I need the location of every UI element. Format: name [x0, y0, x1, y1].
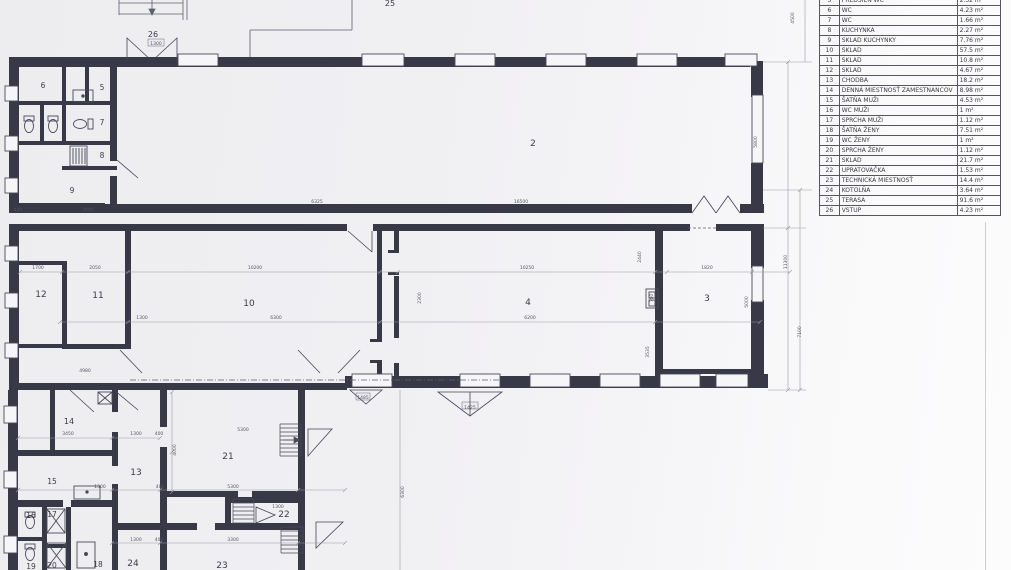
legend-cell-area: 1.12 m² [957, 146, 1000, 156]
room-label-17: 17 [47, 510, 57, 519]
legend-cell-area: 91.6 m² [957, 196, 1000, 206]
legend-row: 14DENNÁ MIESTNOSŤ ZAMESTNANCOV8.98 m² [820, 86, 1001, 96]
dimension-label: 5300 [237, 427, 249, 433]
room-label-15: 15 [47, 477, 57, 486]
room-label-14: 14 [64, 417, 74, 426]
room-label-23: 23 [216, 561, 227, 570]
dimension-label: 1300 [272, 504, 284, 510]
room-label-26: 26 [148, 30, 158, 39]
legend-cell-name: SKLAD [839, 66, 957, 76]
legend-cell-num: 12 [820, 66, 840, 76]
room-label-25: 25 [385, 0, 395, 8]
legend-row: 23TECHNICKÁ MIESTNOSŤ14.4 m² [820, 176, 1001, 186]
legend-row: 6WC4.23 m² [820, 6, 1001, 16]
legend-cell-name: WC [839, 16, 957, 26]
legend-cell-num: 22 [820, 166, 840, 176]
doors-group [70, 38, 740, 548]
legend-cell-name: CHODBA [839, 76, 957, 86]
dimension-label: 5300 [227, 484, 239, 490]
stairs-group [233, 424, 303, 553]
legend-cell-name: SKLAD [839, 46, 957, 56]
legend-row: 15ŠATŇA MUŽI4.53 m² [820, 96, 1001, 106]
legend-row: 9SKLAD KUCHYNKY7.76 m² [820, 36, 1001, 46]
dimension-label: 6300 [400, 486, 406, 498]
legend-cell-num: 20 [820, 146, 840, 156]
legend-row: 26VSTUP4.23 m² [820, 206, 1001, 216]
room-label-4: 4 [525, 298, 531, 308]
room-label-21: 21 [222, 452, 233, 462]
legend-row: 13CHODBA18.2 m² [820, 76, 1001, 86]
dimension-label: 16500 [514, 199, 528, 205]
dimension-label: 1425 [464, 405, 476, 411]
legend-row: 21SKLAD21.7 m² [820, 156, 1001, 166]
legend-cell-name: TERASA [839, 196, 957, 206]
legend-cell-num: 6 [820, 6, 840, 16]
legend-row: 11SKLAD10.8 m² [820, 56, 1001, 66]
legend-cell-area: 4.53 m² [957, 96, 1000, 106]
room-label-20: 20 [47, 561, 57, 570]
legend-cell-name: SPRCHA ŽENY [839, 146, 957, 156]
dimension-label: 1300 [130, 431, 142, 437]
scanned-floor-plan-page: 2345678910111213141516171819202122232425… [0, 0, 1011, 570]
dimension-label: 400 [156, 484, 165, 490]
legend-cell-area: 1 m² [957, 136, 1000, 146]
legend-cell-name: KUCHYNKA [839, 26, 957, 36]
legend-row: 24KOTOLŇA3.64 m² [820, 186, 1001, 196]
dimension-label: 750 [649, 294, 655, 303]
legend-cell-num: 16 [820, 106, 840, 116]
legend-cell-num: 21 [820, 156, 840, 166]
legend-cell-area: 4.23 m² [957, 6, 1000, 16]
legend-cell-area: 3.64 m² [957, 186, 1000, 196]
legend-cell-num: 23 [820, 176, 840, 186]
dimension-label: 1485 [357, 395, 369, 401]
legend-cell-num: 10 [820, 46, 840, 56]
room-label-6: 6 [41, 81, 46, 90]
legend-row: 20SPRCHA ŽENY1.12 m² [820, 146, 1001, 156]
legend-cell-area: 14.4 m² [957, 176, 1000, 186]
legend-cell-name: TECHNICKÁ MIESTNOSŤ [839, 176, 957, 186]
legend-row: 16WC MUŽI1 m² [820, 106, 1001, 116]
legend-cell-num: 15 [820, 96, 840, 106]
legend-cell-area: 7.76 m² [957, 36, 1000, 46]
legend-row: 8KUCHYNKA2.27 m² [820, 26, 1001, 36]
legend-cell-area: 10.8 m² [957, 56, 1000, 66]
walls-group [8, 57, 768, 570]
room-label-11: 11 [92, 291, 103, 301]
dimension-label: 2050 [89, 265, 101, 271]
dimension-label: 3535 [645, 346, 651, 358]
dimension-label: 3600 [82, 207, 94, 213]
dim-labels-group: 6325165001700205010200102501820130063006… [14, 12, 803, 543]
legend-cell-name: SKLAD [839, 56, 957, 66]
legend-cell-area: 8.98 m² [957, 86, 1000, 96]
dimension-label: 1300 [130, 537, 142, 543]
dimension-label: 6325 [311, 199, 323, 205]
dimension-label: 6200 [524, 315, 536, 321]
dimension-label: 3300 [227, 537, 239, 543]
legend-cell-area: 1 m² [957, 106, 1000, 116]
legend-cell-name: SKLAD KUCHYNKY [839, 36, 957, 46]
dimension-label: 1300 [94, 484, 106, 490]
legend-cell-area: 1.12 m² [957, 116, 1000, 126]
dimension-label: 1820 [701, 265, 713, 271]
legend-cell-name: ŠATŇA ŽENY [839, 126, 957, 136]
dimension-label: 10200 [248, 265, 262, 271]
legend-row: 7WC1.66 m² [820, 16, 1001, 26]
legend-cell-name: WC [839, 6, 957, 16]
legend-cell-num: 9 [820, 36, 840, 46]
dimension-label: 1700 [32, 265, 44, 271]
legend-row: 19WC ŽENY1 m² [820, 136, 1001, 146]
dimension-label: 400 [155, 537, 164, 543]
legend-cell-num: 7 [820, 16, 840, 26]
room-legend-table: 5PREDSIEŇ WC2.52 m²6WC4.23 m²7WC1.66 m²8… [819, 0, 1001, 216]
dimension-label: 5000 [744, 296, 750, 308]
legend-cell-name: KOTOLŇA [839, 186, 957, 196]
legend-cell-num: 26 [820, 206, 840, 216]
legend-row: 12SKLAD4.67 m² [820, 66, 1001, 76]
legend-cell-num: 24 [820, 186, 840, 196]
room-label-8: 8 [100, 151, 105, 160]
legend-cell-name: VSTUP [839, 206, 957, 216]
legend-cell-area: 1.66 m² [957, 16, 1000, 26]
room-label-22: 22 [278, 510, 289, 520]
room-label-3: 3 [704, 294, 710, 304]
legend-cell-area: 2.27 m² [957, 26, 1000, 36]
dimension-label: 1300 [150, 41, 162, 47]
legend-row: 17SPRCHA MUŽI1.12 m² [820, 116, 1001, 126]
legend-cell-area: 7.51 m² [957, 126, 1000, 136]
legend-cell-area: 18.2 m² [957, 76, 1000, 86]
legend-cell-num: 19 [820, 136, 840, 146]
room-label-24: 24 [127, 559, 139, 569]
legend-cell-area: 4.67 m² [957, 66, 1000, 76]
legend-cell-name: DENNÁ MIESTNOSŤ ZAMESTNANCOV [839, 86, 957, 96]
legend-row: 25TERASA91.6 m² [820, 196, 1001, 206]
dimension-label: 10250 [520, 265, 534, 271]
dimension-label: 4500 [790, 12, 796, 24]
legend-cell-area: 21.7 m² [957, 156, 1000, 166]
paper-fold-line [985, 222, 986, 570]
room-label-10: 10 [243, 299, 255, 309]
room-label-5: 5 [100, 83, 105, 92]
dimension-label: 3450 [62, 431, 74, 437]
dimension-label: 400 [155, 431, 164, 437]
legend-cell-area: 57.5 m² [957, 46, 1000, 56]
legend-cell-name: SPRCHA MUŽI [839, 116, 957, 126]
room-label-19: 19 [26, 562, 36, 570]
legend-cell-num: 14 [820, 86, 840, 96]
room-label-16: 16 [26, 511, 36, 520]
room-label-2: 2 [530, 139, 536, 149]
dimension-label: 400 [14, 207, 23, 213]
dimension-label: 7100 [797, 326, 803, 338]
legend-cell-num: 11 [820, 56, 840, 66]
room-label-12: 12 [35, 290, 46, 300]
legend-cell-name: SKLAD [839, 156, 957, 166]
dimension-label: 2300 [417, 292, 423, 304]
dimension-label: 6300 [270, 315, 282, 321]
legend-cell-name: ŠATŇA MUŽI [839, 96, 957, 106]
legend-cell-num: 25 [820, 196, 840, 206]
legend-cell-area: 4.23 m² [957, 206, 1000, 216]
dimension-label: 11300 [783, 255, 789, 269]
legend-table-body: 5PREDSIEŇ WC2.52 m²6WC4.23 m²7WC1.66 m²8… [820, 0, 1001, 216]
legend-row: 10SKLAD57.5 m² [820, 46, 1001, 56]
dimension-label: 4980 [79, 368, 91, 374]
legend-cell-num: 13 [820, 76, 840, 86]
legend-row: 22UPRATOVAČKA1.53 m² [820, 166, 1001, 176]
room-label-18: 18 [93, 560, 103, 569]
dimension-label: 2440 [637, 251, 643, 263]
legend-cell-area: 1.53 m² [957, 166, 1000, 176]
legend-cell-num: 18 [820, 126, 840, 136]
dimension-label: 5800 [753, 136, 759, 148]
legend-row: 18ŠATŇA ŽENY7.51 m² [820, 126, 1001, 136]
dimension-lines-group [16, 0, 812, 570]
dimension-label: 4000 [172, 444, 178, 456]
legend-cell-num: 17 [820, 116, 840, 126]
legend-cell-name: UPRATOVAČKA [839, 166, 957, 176]
legend-cell-num: 8 [820, 26, 840, 36]
room-label-9: 9 [70, 186, 75, 195]
legend-cell-name: WC MUŽI [839, 106, 957, 116]
room-label-7: 7 [100, 118, 105, 127]
room-label-13: 13 [130, 468, 141, 478]
dimension-label: 1300 [136, 315, 148, 321]
legend-cell-name: WC ŽENY [839, 136, 957, 146]
